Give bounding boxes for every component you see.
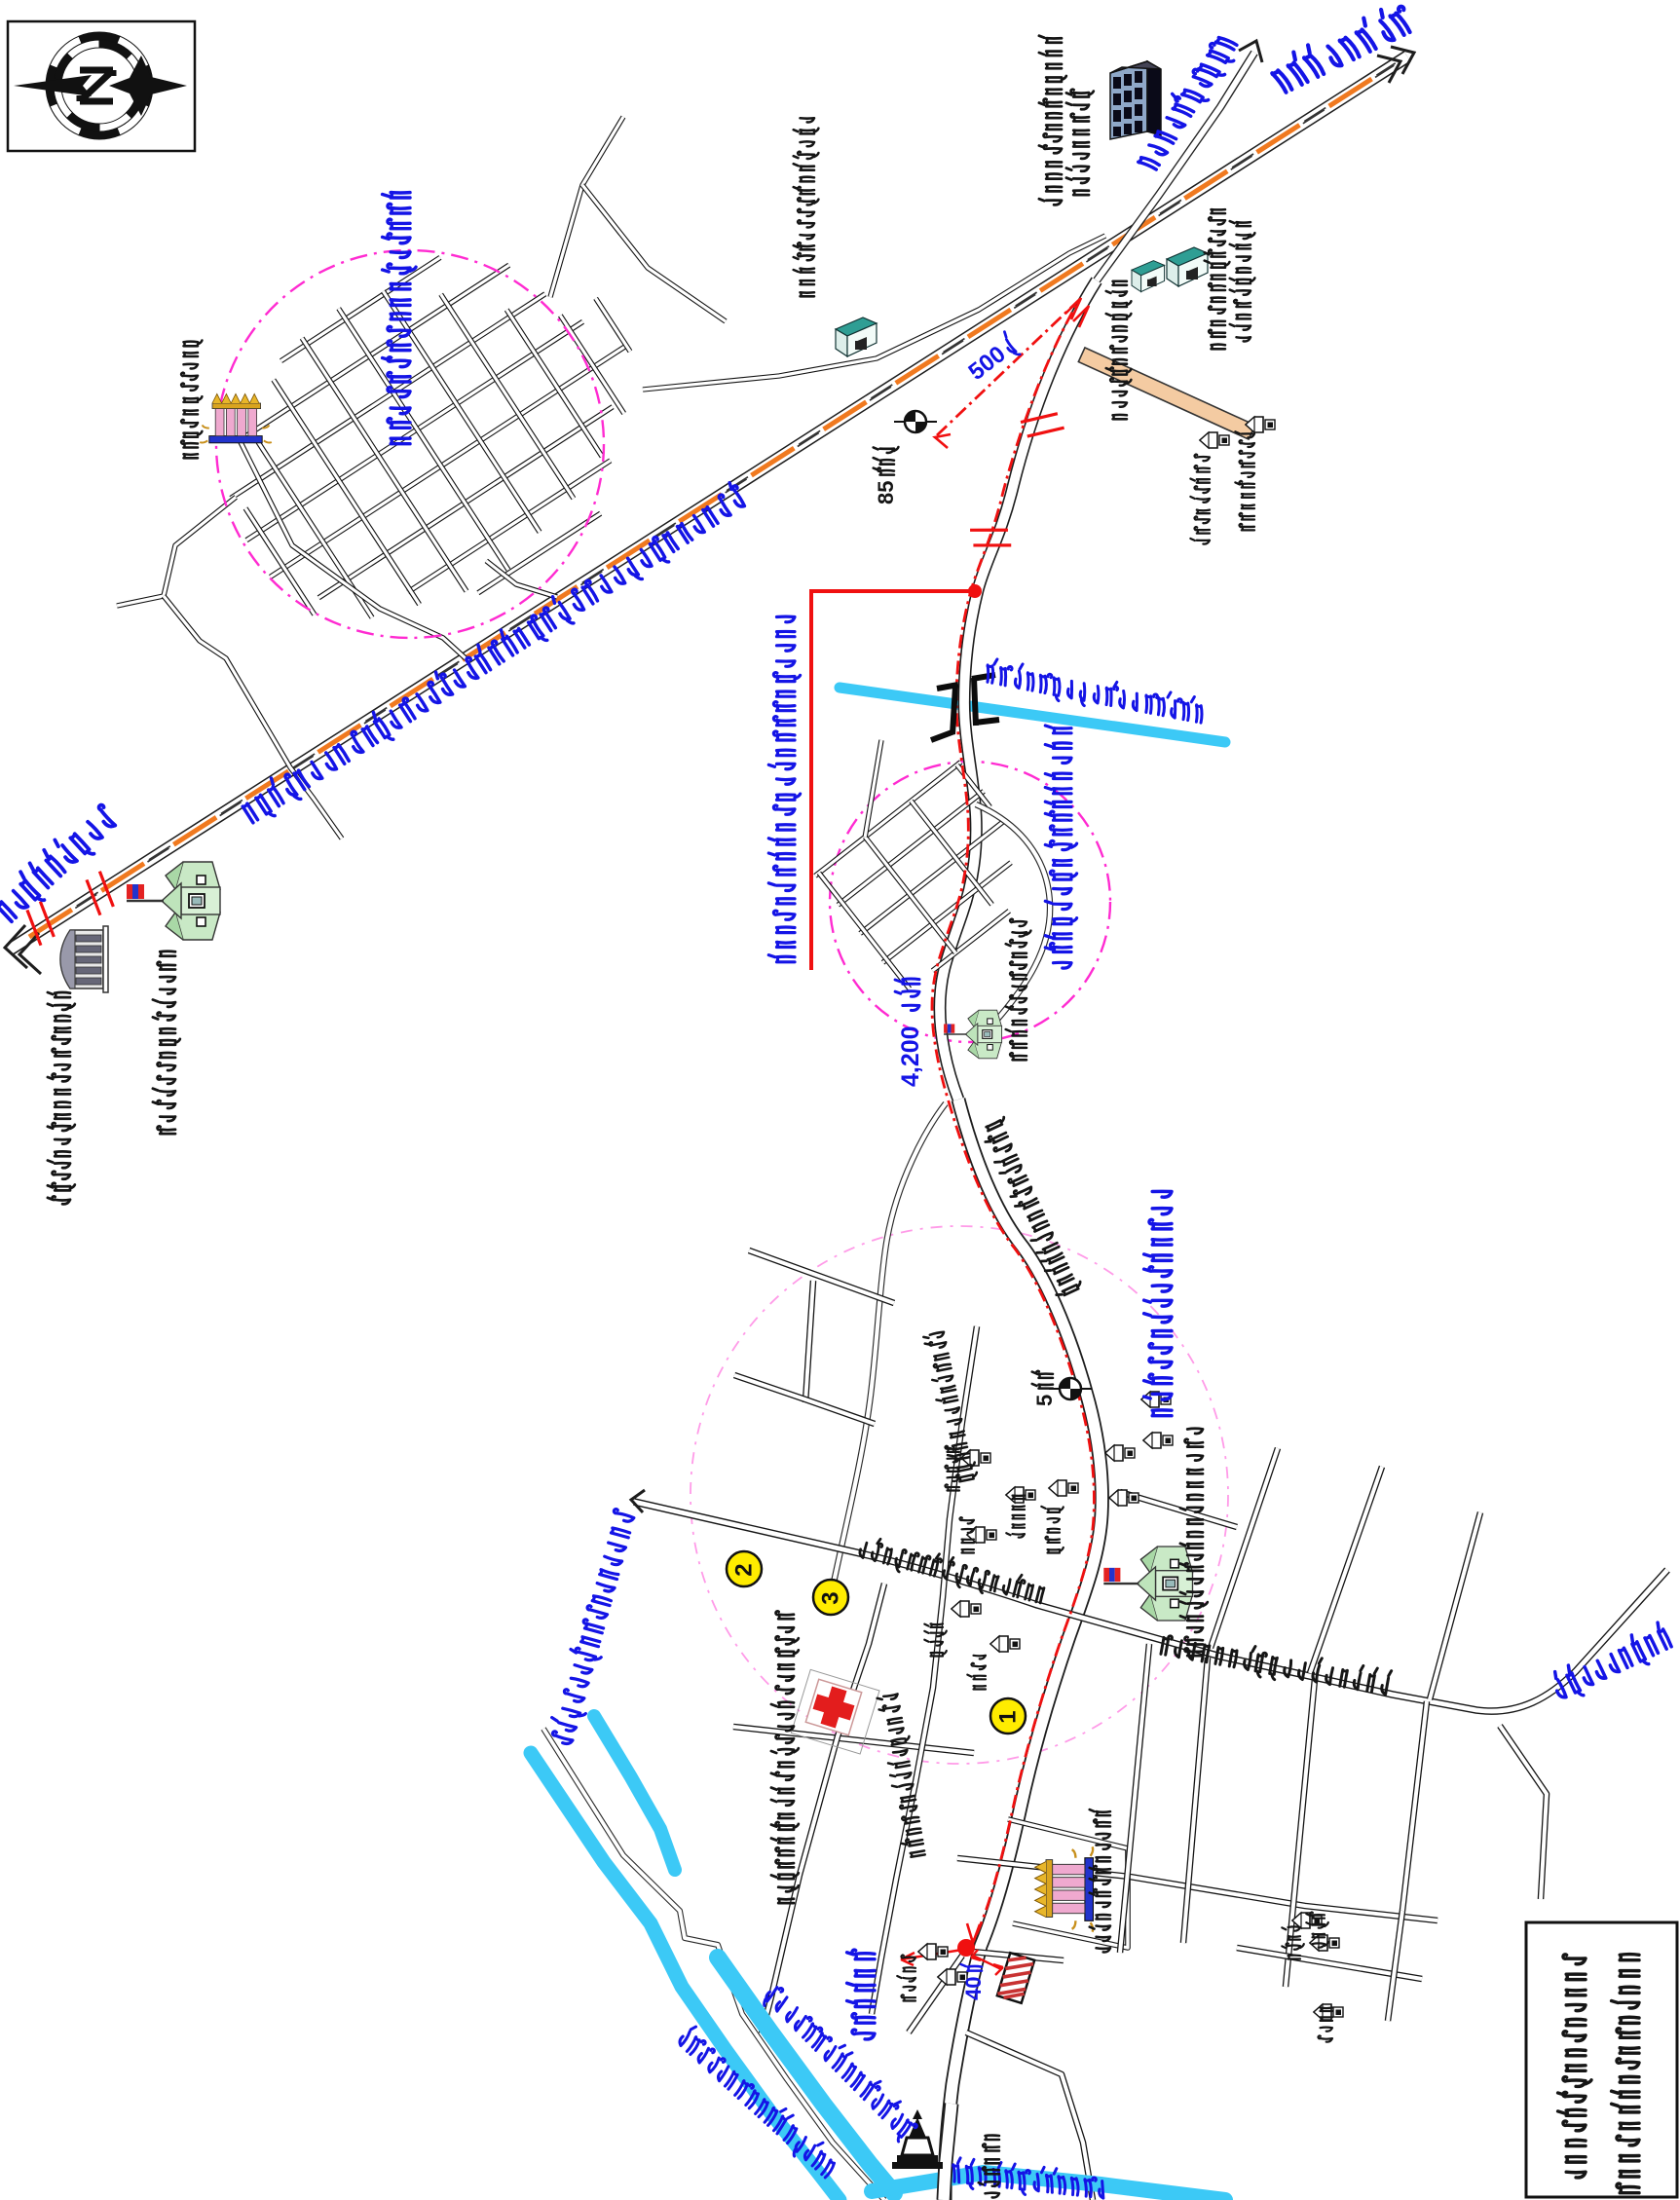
svg-text:5: 5	[1032, 1395, 1057, 1406]
svg-text:2: 2	[731, 1563, 758, 1576]
svg-text:3: 3	[818, 1591, 844, 1604]
svg-text:4,200: 4,200	[897, 1025, 924, 1087]
svg-text:1: 1	[995, 1710, 1022, 1723]
svg-text:40: 40	[961, 1977, 986, 2000]
svg-text:85: 85	[874, 481, 898, 504]
